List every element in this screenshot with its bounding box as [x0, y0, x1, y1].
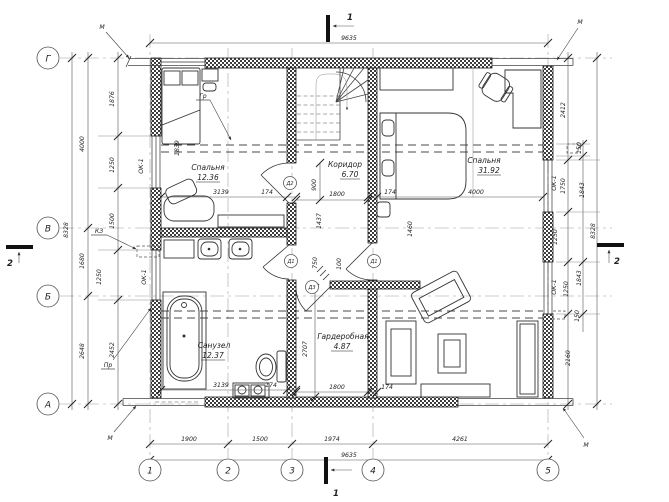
bed-large: [380, 113, 466, 199]
room-labels: Спальня 12.36 Коридор 6.70 Спальня 31.92…: [191, 156, 501, 360]
floor-plan-page: 9635 1900 1500 1974 4261 9635 8328 4000 …: [0, 0, 669, 502]
room-name-corridor: Коридор: [328, 160, 362, 169]
kz-leader: КЗ: [91, 228, 136, 249]
dim-bathroom-wall: 174: [265, 382, 277, 389]
room-name-wardrobe: Гардеробная: [317, 332, 369, 341]
stool: [203, 83, 216, 91]
dim-corridor-1437: 1437: [316, 213, 323, 229]
dim-left-total: 8328: [63, 222, 70, 238]
wall-inner-c2: [368, 280, 377, 398]
wall-top: [205, 58, 492, 68]
axis-col-1: 1: [139, 459, 161, 481]
axis-row-a-label: А: [44, 401, 51, 411]
axis-col-3-label: 3: [289, 467, 295, 477]
axis-col-2: 2: [217, 459, 239, 481]
rug: [438, 334, 466, 373]
dim-bottom-2: 1500: [252, 436, 268, 443]
wall-inner-b: [161, 228, 287, 237]
room-name-bedroom1: Спальня: [191, 163, 225, 172]
door-mark-d1-left-label: Д1: [286, 259, 294, 265]
axis-row-v-label: В: [45, 225, 51, 235]
dim-bedroom2-door: 1460: [407, 221, 414, 237]
wall-inner-a2: [287, 203, 296, 245]
axis-col-3: 3: [281, 459, 303, 481]
metal-leader-top-left: М: [99, 24, 129, 58]
dim-wardrobe-w: 1800: [329, 384, 345, 391]
kz-label: КЗ: [95, 228, 103, 235]
toilet: [256, 351, 286, 382]
door-mark-d1-right: Д1: [368, 255, 381, 268]
wall-bottom: [205, 397, 458, 407]
room-area-corridor: 6.70: [342, 170, 359, 179]
axis-col-1-label: 1: [147, 467, 153, 477]
dim-bedroom2-wall: 174: [384, 189, 396, 196]
metal-label-tr: М: [577, 19, 583, 26]
metal-label-bl: М: [107, 435, 113, 442]
axis-col-2-label: 2: [225, 467, 231, 477]
section-2-right-label: 2: [614, 257, 620, 267]
window-mark-left-1: ОК-1: [138, 158, 145, 173]
pr-label: Пр: [104, 362, 113, 369]
dim-left-det-5: 2452: [109, 342, 116, 358]
dim-corridor-750: 750: [312, 257, 319, 269]
wall-left-2: [151, 188, 161, 250]
loveseat: [386, 321, 416, 384]
room-area-bedroom1: 12.36: [197, 173, 219, 182]
glazing-top-right: [492, 59, 573, 66]
wall-right-3: [543, 314, 553, 398]
section-2-left-label: 2: [7, 259, 13, 269]
dim-left-det-1: 1876: [109, 91, 116, 107]
dim-right-lo-4: 2160: [565, 350, 572, 366]
nightstand-1: [202, 69, 218, 81]
dim-wardrobe-h: 2707: [302, 341, 309, 357]
sofa-tilted: [410, 270, 472, 324]
metal-label-tl: М: [99, 24, 105, 31]
axis-row-g: Г: [37, 47, 59, 69]
bench: [421, 384, 490, 397]
dim-left-axis-1: 4000: [79, 136, 86, 152]
window-mark-right-1: ОК-1: [551, 175, 558, 190]
dim-right-lo-1: 1843: [576, 270, 583, 286]
wall-inner-c1: [368, 68, 377, 243]
dim-right-lo-2: 1250: [563, 281, 570, 297]
nightstand-2: [377, 202, 390, 217]
dim-bedroom1-h: 1839: [174, 140, 181, 156]
door-mark-d1-left: Д1: [285, 255, 298, 268]
door-mark-d2: Д2: [284, 177, 297, 190]
axis-row-v: В: [37, 217, 59, 239]
dim-right-up-1: 2412: [560, 102, 567, 118]
axis-row-b: Б: [37, 285, 59, 307]
closet: [380, 68, 453, 90]
dim-bathroom-w: 3139: [213, 382, 229, 389]
window-left-2: [151, 250, 161, 300]
bed-small: [162, 68, 200, 144]
wall-left-1: [151, 58, 161, 136]
axis-col-5: 5: [537, 459, 559, 481]
section-marks: 1 1 2 2: [6, 13, 624, 499]
axis-markers: Г В Б А 1 2 3 4: [37, 47, 559, 481]
section-1-top-label: 1: [347, 13, 353, 23]
washer-unit: [233, 383, 269, 398]
chaise-lounge: [164, 177, 214, 221]
wall-inner-d: [330, 281, 420, 289]
axis-col-4-label: 4: [370, 467, 376, 477]
dim-left-det-4: 1250: [96, 269, 103, 285]
axis-row-a: А: [37, 393, 59, 415]
dim-left-det-2: 1250: [109, 157, 116, 173]
staircase: [296, 68, 368, 140]
wall-inner-a3: [287, 280, 296, 398]
wall-right-1: [543, 66, 553, 160]
room-area-wardrobe: 4.87: [334, 342, 351, 351]
dim-right-up-2: 150: [576, 142, 583, 154]
dim-left-det-3: 1500: [109, 213, 116, 229]
section-2-left: 2: [6, 245, 33, 269]
dim-right-lo-3: 150: [574, 310, 581, 322]
winder-treads: [336, 68, 368, 102]
wall-inner-a1: [287, 68, 296, 163]
dim-bottom-1: 1900: [181, 436, 197, 443]
dim-bedroom1-w: 3139: [213, 189, 229, 196]
dim-corridor-w: 1800: [329, 191, 345, 198]
dim-left-axis-2: 1680: [79, 253, 86, 269]
section-1-bottom-label: 1: [333, 489, 339, 499]
metal-label-br: М: [583, 442, 589, 449]
floor-plan-drawing: 9635 1900 1500 1974 4261 9635 8328 4000 …: [0, 0, 669, 502]
tall-cabinet: [517, 321, 538, 397]
metal-leader-bottom-left: М: [107, 406, 136, 442]
door-mark-d2-label: Д2: [285, 181, 293, 187]
door-mark-d3: Д3: [306, 281, 319, 294]
dim-bottom-4: 4261: [452, 436, 468, 443]
section-2-right: 2: [597, 243, 624, 267]
axis-col-5-label: 5: [545, 467, 551, 477]
dim-corridor-h: 900: [311, 179, 318, 191]
sink-2: [229, 239, 252, 259]
dim-top-total: 9635: [341, 35, 357, 42]
window-mark-right-2: ОК-1: [551, 279, 558, 294]
axis-col-4: 4: [362, 459, 384, 481]
stair-walk-line: [316, 74, 347, 140]
dim-bedroom2-w: 4000: [468, 189, 484, 196]
gr-label: Гр: [199, 93, 206, 100]
pr-leader: Пр: [101, 308, 151, 369]
room-name-bathroom: Санузел: [198, 341, 231, 350]
sink-1: [198, 239, 221, 259]
window-left-1: [151, 136, 161, 188]
room-area-bathroom: 12.37: [202, 351, 224, 360]
dim-wardrobe-wall: 174: [381, 384, 393, 391]
bath-cabinet: [164, 240, 194, 258]
dim-right-up-5: 1250: [552, 229, 559, 245]
gr-leader: Гр: [196, 93, 231, 140]
room-name-bedroom2: Спальня: [467, 156, 501, 165]
dim-bedroom1-wall: 174: [261, 189, 273, 196]
lintel-dashed-right-2: [553, 311, 565, 319]
dim-right-up-3: 1750: [560, 178, 567, 194]
dim-right-up-4: 1843: [579, 182, 586, 198]
room-area-bedroom2: 31.92: [478, 166, 500, 175]
strip-bottom-right: [458, 399, 573, 406]
desk: [505, 70, 541, 128]
window-mark-left-2: ОК-1: [141, 269, 148, 284]
dim-corridor-100: 100: [336, 258, 343, 270]
glazing-top-left: [126, 56, 205, 67]
axis-row-b-label: Б: [45, 293, 51, 303]
door-mark-d1-right-label: Д1: [369, 259, 377, 265]
dim-bottom-total: 9635: [341, 452, 357, 459]
door-mark-d3-label: Д3: [307, 285, 315, 291]
metal-leader-top-right: М: [557, 19, 583, 60]
section-1-bottom: 1: [324, 457, 352, 499]
strip-bottom-left: [123, 399, 205, 406]
wall-left-3: [151, 300, 161, 398]
metal-leader-bottom-right: М: [563, 408, 589, 449]
desk-chair: [476, 68, 516, 106]
dim-right-total: 8328: [590, 223, 597, 239]
dim-left-axis-3: 2648: [79, 343, 86, 359]
dim-bottom-3: 1974: [324, 436, 340, 443]
